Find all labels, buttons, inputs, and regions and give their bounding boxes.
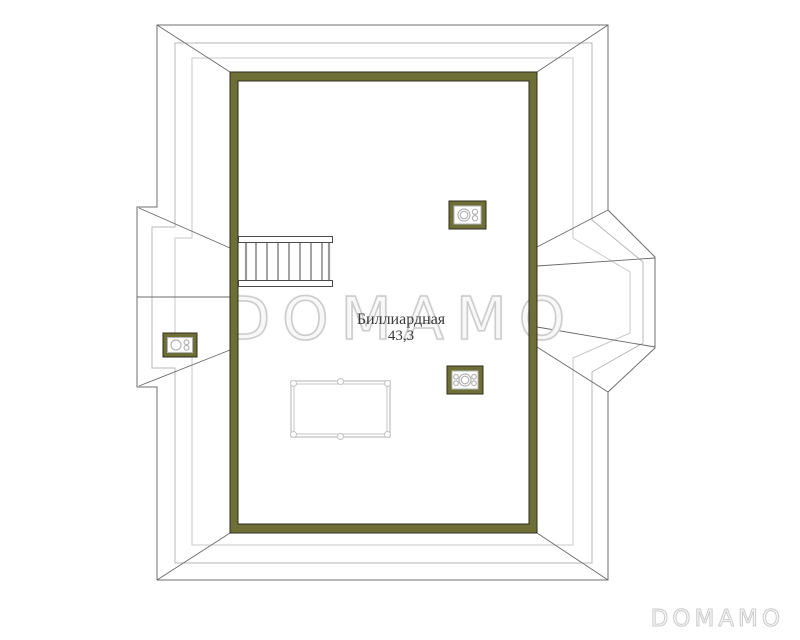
roof-window-bottom (447, 366, 483, 394)
billiard-table (291, 379, 391, 440)
room-label: Биллиардная 43,3 (320, 311, 482, 345)
staircase (239, 237, 333, 287)
stair-bottom-rail (239, 281, 333, 287)
exterior-walls (230, 72, 537, 533)
room-area: 43,3 (320, 328, 482, 345)
room-name: Биллиардная (320, 311, 482, 328)
floorplan-canvas: DOMAMO (0, 0, 800, 640)
stair-top-rail (239, 237, 333, 243)
roof-window-left (163, 333, 197, 357)
roof-window-top (449, 201, 486, 229)
